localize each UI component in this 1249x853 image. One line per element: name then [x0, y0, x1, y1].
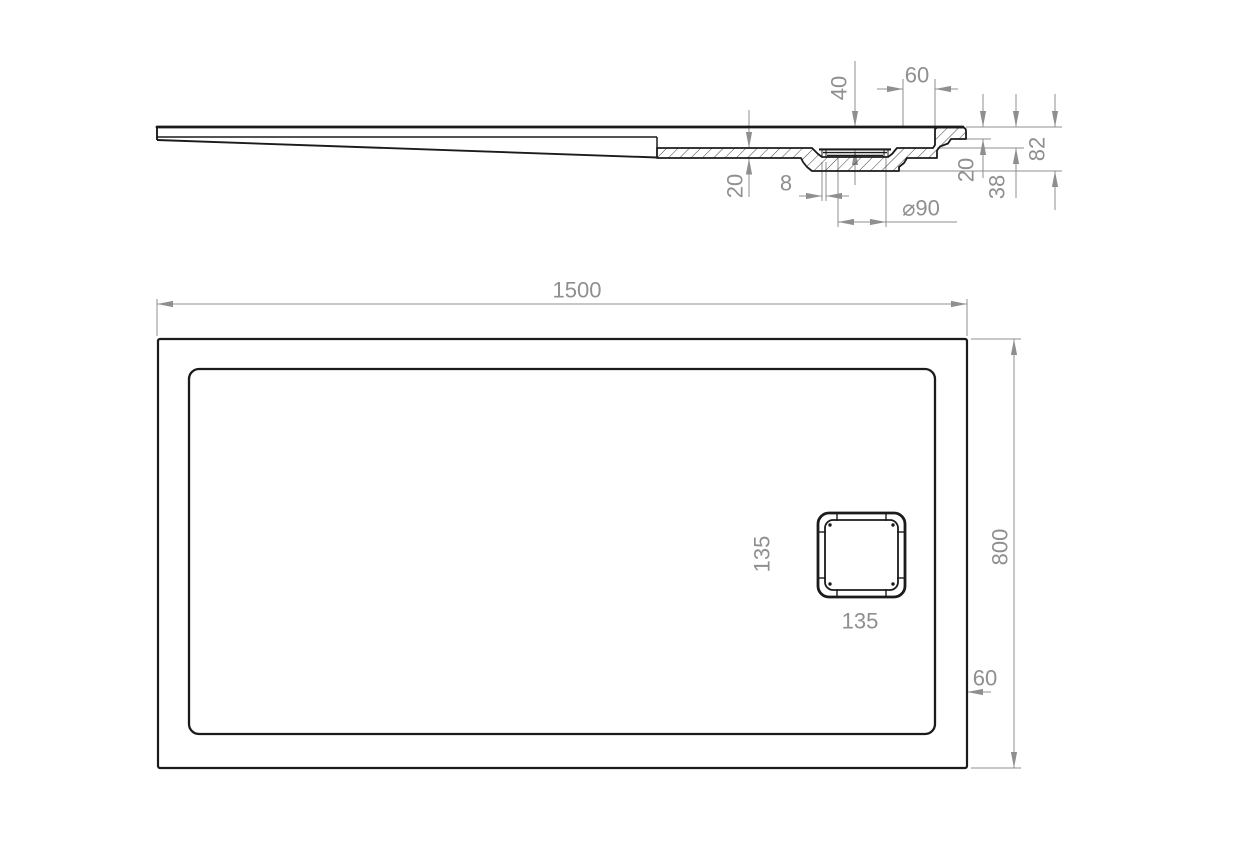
dim-label-drain-diameter: ⌀90 [902, 196, 940, 221]
drain-dot-top-right [891, 523, 894, 526]
dim-label-60-plan: 60 [973, 666, 997, 691]
drain-dot-bottom-right [891, 582, 894, 585]
dim-label-8: 8 [780, 171, 792, 196]
section-view: 40 60 20 8 ⌀90 20 38 82 [157, 61, 1062, 227]
dim-label-20-edge: 20 [954, 158, 979, 182]
dim-label-135-horizontal: 135 [842, 609, 879, 634]
dim-label-1500: 1500 [553, 278, 602, 303]
shower-tray-drawing: 40 60 20 8 ⌀90 20 38 82 [0, 0, 1249, 853]
section-hatched-body [657, 128, 966, 172]
dim-label-135-vertical: 135 [750, 536, 775, 573]
dim-label-82: 82 [1025, 137, 1050, 161]
dim-label-40: 40 [827, 76, 852, 100]
technical-drawing-page: 40 60 20 8 ⌀90 20 38 82 [0, 0, 1249, 853]
dim-label-60-section: 60 [905, 63, 929, 88]
drain-inner-cover [825, 520, 898, 590]
plan-view: 1500 800 135 135 60 [157, 278, 1021, 769]
drain-square [817, 512, 906, 598]
section-sloped-underside [157, 140, 657, 158]
drain-dot-top-left [828, 523, 831, 526]
tray-section-profile [157, 127, 966, 171]
dim-label-20-base: 20 [723, 174, 748, 198]
drain-dot-bottom-left [828, 582, 831, 585]
dim-label-38: 38 [985, 175, 1010, 199]
dim-label-800: 800 [988, 529, 1013, 566]
